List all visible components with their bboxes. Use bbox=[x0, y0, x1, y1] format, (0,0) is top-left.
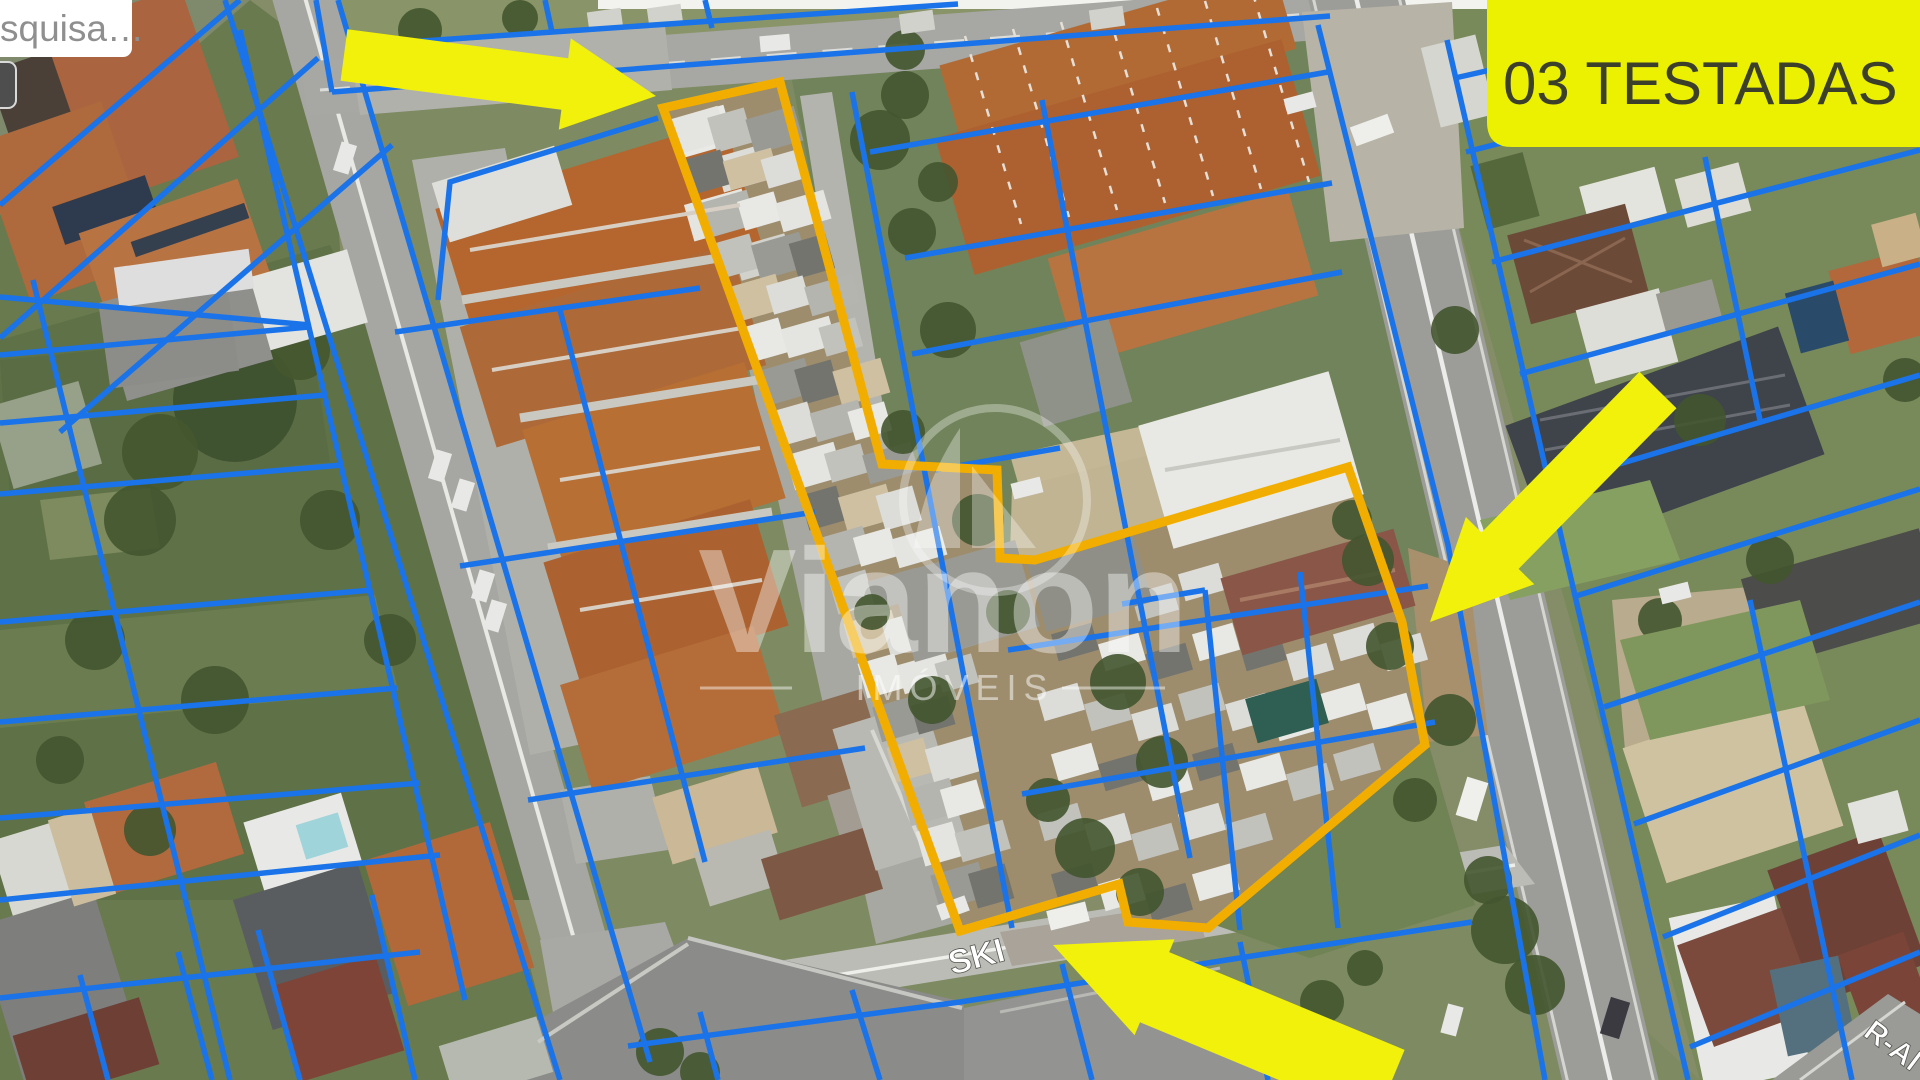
svg-text:Vianon: Vianon bbox=[698, 519, 1189, 684]
svg-text:03 TESTADAS: 03 TESTADAS bbox=[1503, 50, 1898, 117]
svg-text:IMÓVEIS: IMÓVEIS bbox=[855, 667, 1054, 708]
svg-text:squisa…: squisa… bbox=[0, 8, 144, 49]
